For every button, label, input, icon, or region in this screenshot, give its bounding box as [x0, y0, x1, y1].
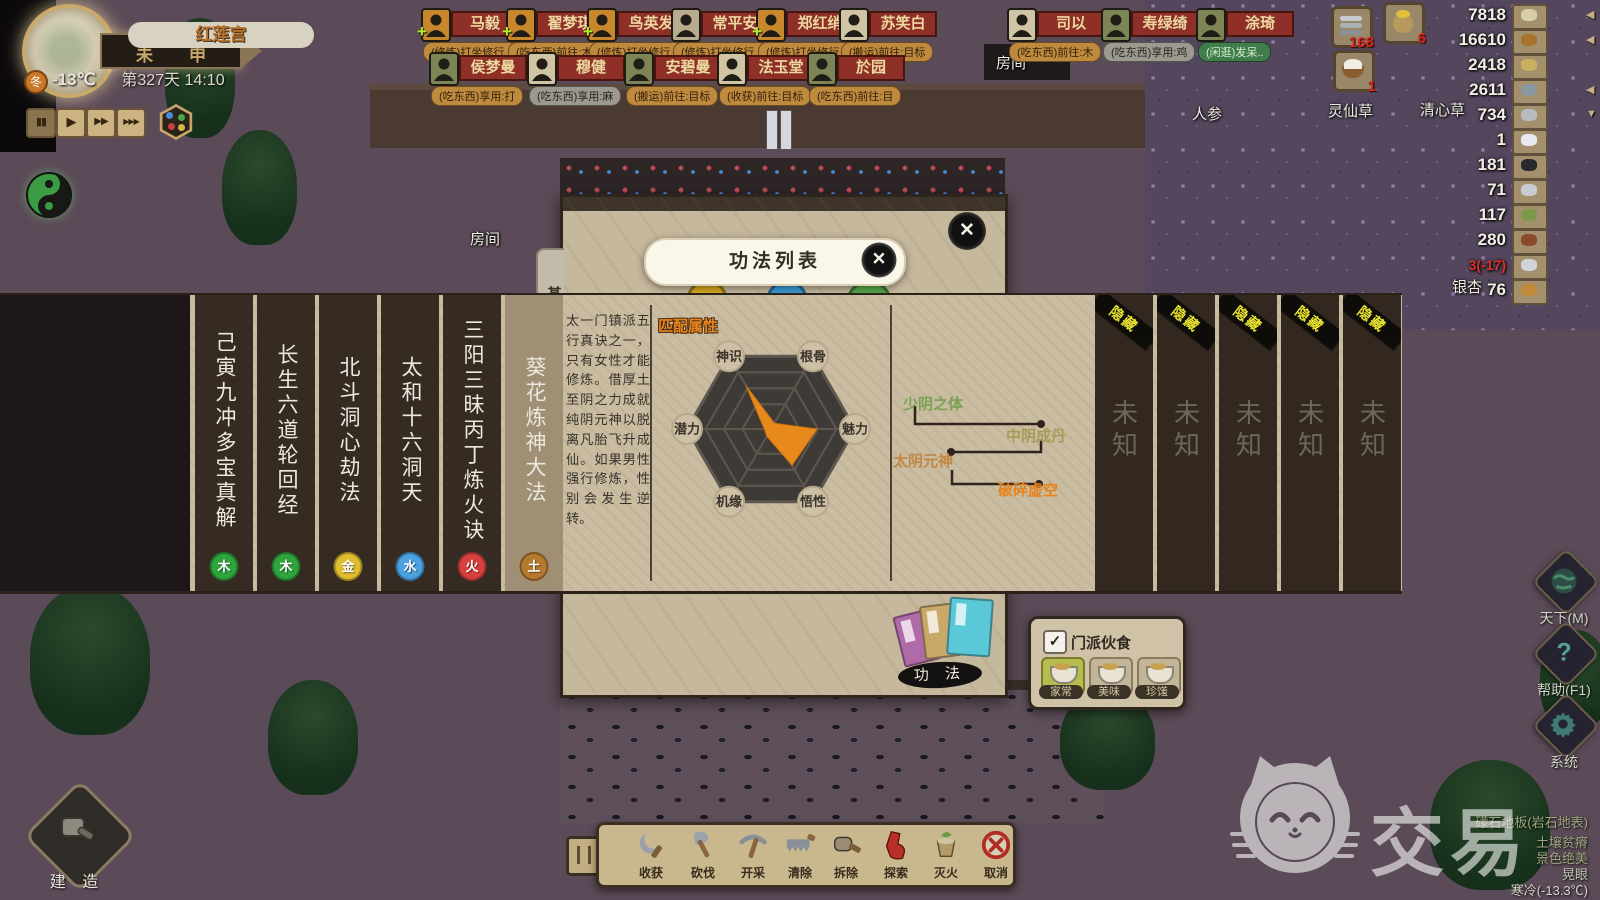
add-icon: + — [502, 22, 512, 42]
method-name: 葵花炼神大法 — [519, 356, 549, 506]
dumpling-icon — [1512, 54, 1548, 80]
question-icon: ? — [1549, 638, 1579, 673]
hidden-ribbon: 隐藏 — [1219, 295, 1277, 348]
method-name: 长生六道轮回经 — [271, 344, 301, 519]
resource-glyph — [1521, 59, 1537, 71]
arrow-left-icon[interactable]: ◀ — [1586, 8, 1594, 21]
ore-icon — [1512, 229, 1548, 255]
map-label-灵仙草: 灵仙草 — [1328, 100, 1373, 121]
method-name: 太和十六洞天 — [395, 356, 425, 506]
resource-glyph — [1521, 84, 1537, 96]
silver-icon — [1512, 254, 1548, 280]
game-screen: 房间房间人参灵仙草清心草银杏 未 申 ▼ 第327天 14:10 冬 -13℃ … — [0, 0, 1600, 900]
status-badge: (吃东西)享用:麻 — [529, 86, 621, 106]
avatar — [671, 8, 701, 42]
resource-row-cooked-meat-icon[interactable]: 16610◀ — [1440, 29, 1600, 53]
method-太和十六洞天[interactable]: 太和十六洞天水 — [381, 295, 439, 591]
cooked-meat-icon — [1512, 29, 1548, 55]
hidden-method-column[interactable]: 隐藏未知 — [1343, 295, 1401, 591]
resource-row-metal-plate-icon[interactable]: 734▼ — [1440, 104, 1600, 128]
map-marker — [780, 110, 792, 150]
unknown-label: 未知 — [1106, 399, 1143, 463]
tree — [222, 130, 297, 245]
alert-badge-bg — [161, 107, 191, 137]
svg-text:潜力: 潜力 — [674, 422, 700, 437]
mallet-icon — [54, 808, 100, 854]
rice-bowl-icon[interactable]: 1 — [1333, 50, 1375, 92]
stage-少阴之体: 少阴之体 — [903, 393, 963, 414]
element-badge-木: 木 — [272, 552, 301, 581]
stage-破碎虚空: 破碎虚空 — [998, 479, 1058, 500]
hidden-ribbon: 隐藏 — [1157, 295, 1215, 348]
add-icon: + — [583, 22, 593, 42]
food-bowl-icon — [1098, 666, 1126, 684]
metal-plate-icon — [1512, 104, 1548, 130]
unknown-label: 未知 — [1354, 399, 1391, 463]
resource-count: 16610 — [1430, 30, 1506, 50]
character-name: 涂琦 — [1226, 11, 1294, 37]
character-name: 侯梦曼 — [459, 55, 527, 81]
tool-label: 拆除 — [824, 864, 868, 881]
tile-status: 礞石地板(岩石地表) — [1475, 812, 1588, 831]
food-panel-title: 门派伙食 — [1071, 632, 1131, 653]
pause-icon[interactable]: ▮▮ — [26, 108, 56, 138]
method-葵花炼神大法[interactable]: 葵花炼神大法土 — [505, 295, 563, 591]
yin-yang-icon[interactable] — [26, 172, 72, 218]
hidden-method-column[interactable]: 隐藏未知 — [1281, 295, 1339, 591]
svg-text:机缘: 机缘 — [716, 494, 742, 509]
resource-row-coal-icon[interactable]: 181 — [1440, 154, 1600, 178]
tool-label: 开采 — [731, 864, 775, 881]
tool-label: 收获 — [629, 864, 673, 881]
svg-text:魅力: 魅力 — [842, 422, 868, 437]
quickslot-count: 168 — [1349, 34, 1374, 51]
cat-logo-icon — [1228, 750, 1363, 885]
sect-panel-title: 红莲宫 — [128, 22, 314, 48]
tool-探索[interactable]: 探索 — [874, 829, 918, 883]
cancel-icon — [979, 848, 1013, 865]
book-label — [901, 619, 916, 643]
book-label — [927, 610, 940, 633]
temperature-label: -13℃ — [52, 70, 96, 90]
character-name: 苏笑白 — [869, 11, 937, 37]
hidden-method-column[interactable]: 隐藏未知 — [1219, 295, 1277, 591]
arrow-down-icon[interactable]: ▼ — [1586, 108, 1597, 120]
character-name: 司以 — [1037, 11, 1105, 37]
toolbar-handle[interactable] — [566, 836, 600, 876]
hidden-method-column[interactable]: 隐藏未知 — [1095, 295, 1153, 591]
avatar — [527, 52, 557, 86]
resource-row-fish-icon[interactable]: 2611◀ — [1440, 79, 1600, 103]
tool-label: 砍伐 — [681, 864, 725, 881]
book-label — [955, 603, 967, 626]
resource-glyph — [1521, 234, 1537, 246]
food-checkbox[interactable]: ✓ — [1043, 630, 1067, 654]
sickle-icon — [634, 848, 668, 865]
map-label-人参: 人参 — [1192, 103, 1222, 124]
resource-row-porcelain-bowl-icon[interactable]: 1 — [1440, 129, 1600, 153]
svg-text:?: ? — [1556, 639, 1571, 667]
food-option-label: 家常 — [1039, 685, 1083, 699]
resource-count: 117 — [1430, 205, 1506, 225]
ingot-stack-icon[interactable]: 168 — [1331, 6, 1373, 48]
shelf-items — [560, 158, 1005, 196]
fish-icon — [1512, 79, 1548, 105]
resource-count: 76 — [1430, 280, 1506, 300]
resource-count: 3(-17) — [1430, 257, 1506, 273]
avatar — [1007, 8, 1037, 42]
avatar — [839, 8, 869, 42]
element-badge-土: 土 — [520, 552, 549, 581]
tool-取消[interactable]: 取消 — [974, 829, 1018, 883]
dot — [168, 123, 175, 130]
svg-text:根骨: 根骨 — [800, 349, 826, 364]
resource-sidebar: 7818◀16610◀24182611◀734▼1181711172803(-1… — [1440, 4, 1600, 314]
resource-count: 280 — [1430, 230, 1506, 250]
quickslot-count: 1 — [1368, 78, 1376, 95]
sect-food-panel: ✓ 门派伙食 家常美味珍馐 — [1028, 616, 1186, 710]
resource-row-silver-icon[interactable]: 3(-17) — [1440, 254, 1600, 278]
attribute-radar-chart: 魅力悟性机缘潜力神识根骨 — [645, 327, 897, 537]
food-bowl-icon — [1050, 666, 1078, 684]
dot — [178, 124, 185, 131]
resource-count: 71 — [1430, 180, 1506, 200]
fast-forward-icon[interactable]: ▶▶ — [86, 108, 116, 138]
resource-row-steel-icon[interactable]: 71 — [1440, 179, 1600, 203]
strip-dark-overlay — [0, 295, 190, 591]
status-badge: (吃东西)前往:木 — [1009, 42, 1101, 62]
side-button-帮助(F1)[interactable]: ?帮助(F1) — [1536, 628, 1592, 702]
tree — [268, 680, 358, 795]
avatar — [1196, 8, 1226, 42]
boot-icon — [879, 848, 913, 865]
resource-glyph — [1521, 259, 1537, 271]
element-badge-金: 金 — [334, 552, 363, 581]
method-name: 己寅九冲多宝真解 — [209, 331, 239, 531]
svg-text:神识: 神识 — [716, 349, 742, 364]
map-label-房间: 房间 — [470, 228, 500, 249]
tile-status: 寒冷(-13.3℃) — [1511, 880, 1588, 899]
quickslot-count: 6 — [1418, 30, 1426, 47]
fastest-forward-icon[interactable]: ▶▶▶ — [116, 108, 146, 138]
order-toolbar: 收获砍伐开采清除拆除探索灭火取消 — [596, 822, 1016, 888]
unknown-label: 未知 — [1168, 399, 1205, 463]
mallet-icon — [829, 848, 863, 865]
element-badge-火: 火 — [458, 552, 487, 581]
unknown-label: 未知 — [1230, 399, 1267, 463]
food-option-label: 珍馐 — [1135, 685, 1179, 699]
steel-icon — [1512, 179, 1548, 205]
hidden-method-column[interactable]: 隐藏未知 — [1157, 295, 1215, 591]
tool-拆除[interactable]: 拆除 — [824, 829, 868, 883]
floor-items — [560, 688, 1105, 823]
map-marker — [766, 110, 778, 150]
coal-icon — [1512, 154, 1548, 180]
avatar — [429, 52, 459, 86]
method-name: 三阳三昧丙丁炼火诀 — [457, 319, 487, 544]
add-icon: + — [752, 22, 762, 42]
method-description: 太一门镇派五行真诀之一，只有女性才能修炼。借厚土至阴之力成就纯阴元神以脱离凡胎飞… — [566, 311, 650, 529]
noodle-bowl-icon — [1512, 4, 1548, 30]
emblem-art — [36, 16, 94, 78]
character-name: 寿绿绮 — [1131, 11, 1199, 37]
resource-row-copper-icon[interactable]: 76 — [1440, 279, 1600, 303]
dot — [166, 112, 173, 119]
tree — [30, 585, 150, 735]
avatar — [624, 52, 654, 86]
status-badge: (收获)前往:目标 — [719, 86, 811, 106]
food-bowl-icon — [1146, 666, 1174, 684]
arrow-left-icon[interactable]: ◀ — [1586, 33, 1594, 46]
method-三阳三昧丙丁炼火诀[interactable]: 三阳三昧丙丁炼火诀火 — [443, 295, 501, 591]
hidden-ribbon: 隐藏 — [1281, 295, 1339, 348]
method-detail-strip: 己寅九冲多宝真解木长生六道轮回经木北斗洞心劫法金太和十六洞天水三阳三昧丙丁炼火诀… — [0, 293, 1402, 594]
method-name: 北斗洞心劫法 — [333, 356, 363, 506]
element-badge-木: 木 — [210, 552, 239, 581]
food-option-label: 美味 — [1087, 685, 1131, 699]
status-badge: (搬运)前往:目标 — [626, 86, 718, 106]
resource-row-ore-icon[interactable]: 280 — [1440, 229, 1600, 253]
resource-row-dumpling-icon[interactable]: 2418 — [1440, 54, 1600, 78]
resource-row-herb-icon[interactable]: 117 — [1440, 204, 1600, 228]
resource-glyph — [1521, 184, 1537, 196]
tool-开采[interactable]: 开采 — [731, 829, 775, 883]
close-list-button[interactable] — [862, 243, 897, 278]
herb-icon — [1512, 204, 1548, 230]
tool-label: 灭火 — [924, 864, 968, 881]
arrow-left-icon[interactable]: ◀ — [1586, 83, 1594, 96]
resource-count: 2611 — [1430, 80, 1506, 100]
stage-太阴元神: 太阴元神 — [893, 450, 953, 471]
bucket-icon — [929, 848, 963, 865]
svg-text:悟性: 悟性 — [800, 494, 826, 509]
porcelain-bowl-icon — [1512, 129, 1548, 155]
resource-glyph — [1521, 109, 1537, 121]
character-name: 安碧曼 — [654, 55, 722, 81]
stage-中阴成丹: 中阴成丹 — [1006, 425, 1066, 446]
side-button-系统[interactable]: 系统 — [1536, 700, 1592, 774]
resource-count: 2418 — [1430, 55, 1506, 75]
resource-glyph — [1521, 134, 1537, 146]
hidden-ribbon: 隐藏 — [1343, 295, 1401, 348]
character-name: 穆健 — [557, 55, 625, 81]
character-name: 於园 — [837, 55, 905, 81]
play-icon[interactable]: ▶ — [56, 108, 86, 138]
grain-sack-icon[interactable]: 6 — [1383, 2, 1425, 44]
close-panel-button[interactable] — [948, 212, 986, 250]
resource-count: 1 — [1430, 130, 1506, 150]
avatar — [807, 52, 837, 86]
season-badge: 冬 — [24, 70, 48, 94]
method-北斗洞心劫法[interactable]: 北斗洞心劫法金 — [319, 295, 377, 591]
dot — [178, 114, 185, 121]
tool-label: 取消 — [974, 864, 1018, 881]
copper-icon — [1512, 279, 1548, 305]
saw-icon — [783, 848, 817, 865]
world-icon — [1549, 566, 1579, 601]
add-icon: + — [417, 22, 427, 42]
method-长生六道轮回经[interactable]: 长生六道轮回经木 — [257, 295, 315, 591]
resource-glyph — [1521, 284, 1537, 296]
resource-glyph — [1521, 159, 1537, 171]
avatar — [717, 52, 747, 86]
avatar — [1101, 8, 1131, 42]
tool-收获[interactable]: 收获 — [629, 829, 673, 883]
character-name: 法玉堂 — [747, 55, 815, 81]
axe-icon — [686, 848, 720, 865]
side-button-天下(M)[interactable]: 天下(M) — [1536, 556, 1592, 630]
resource-row-noodle-bowl-icon[interactable]: 7818◀ — [1440, 4, 1600, 28]
status-badge: (闲逛)发呆.. — [1198, 42, 1271, 62]
build-button-label: 建 造 — [22, 868, 132, 892]
gear-icon — [1549, 710, 1577, 743]
status-badge: (吃东西)享用:鸡 — [1103, 42, 1195, 62]
resource-count: 734 — [1430, 105, 1506, 125]
status-badge: (吃东西)享用:打 — [431, 86, 523, 106]
tool-灭火[interactable]: 灭火 — [924, 829, 968, 883]
tool-label: 清除 — [778, 864, 822, 881]
status-badge: (吃东西)前往:目 — [809, 86, 901, 106]
element-badge-水: 水 — [396, 552, 425, 581]
method-book[interactable] — [946, 597, 994, 658]
method-己寅九冲多宝真解[interactable]: 己寅九冲多宝真解木 — [195, 295, 253, 591]
tool-label: 探索 — [874, 864, 918, 881]
build-button[interactable]: 建 造 — [22, 786, 132, 896]
tool-砍伐[interactable]: 砍伐 — [681, 829, 725, 883]
unknown-label: 未知 — [1292, 399, 1329, 463]
resource-glyph — [1521, 9, 1537, 21]
hidden-ribbon: 隐藏 — [1095, 295, 1153, 348]
resource-glyph — [1521, 209, 1537, 221]
tool-清除[interactable]: 清除 — [778, 829, 822, 883]
side-button-label: 系统 — [1528, 752, 1600, 772]
pickaxe-icon — [736, 848, 770, 865]
resource-count: 7818 — [1430, 5, 1506, 25]
resource-count: 181 — [1430, 155, 1506, 175]
resource-glyph — [1521, 34, 1537, 46]
date-line: 第327天 14:10 — [98, 66, 248, 90]
